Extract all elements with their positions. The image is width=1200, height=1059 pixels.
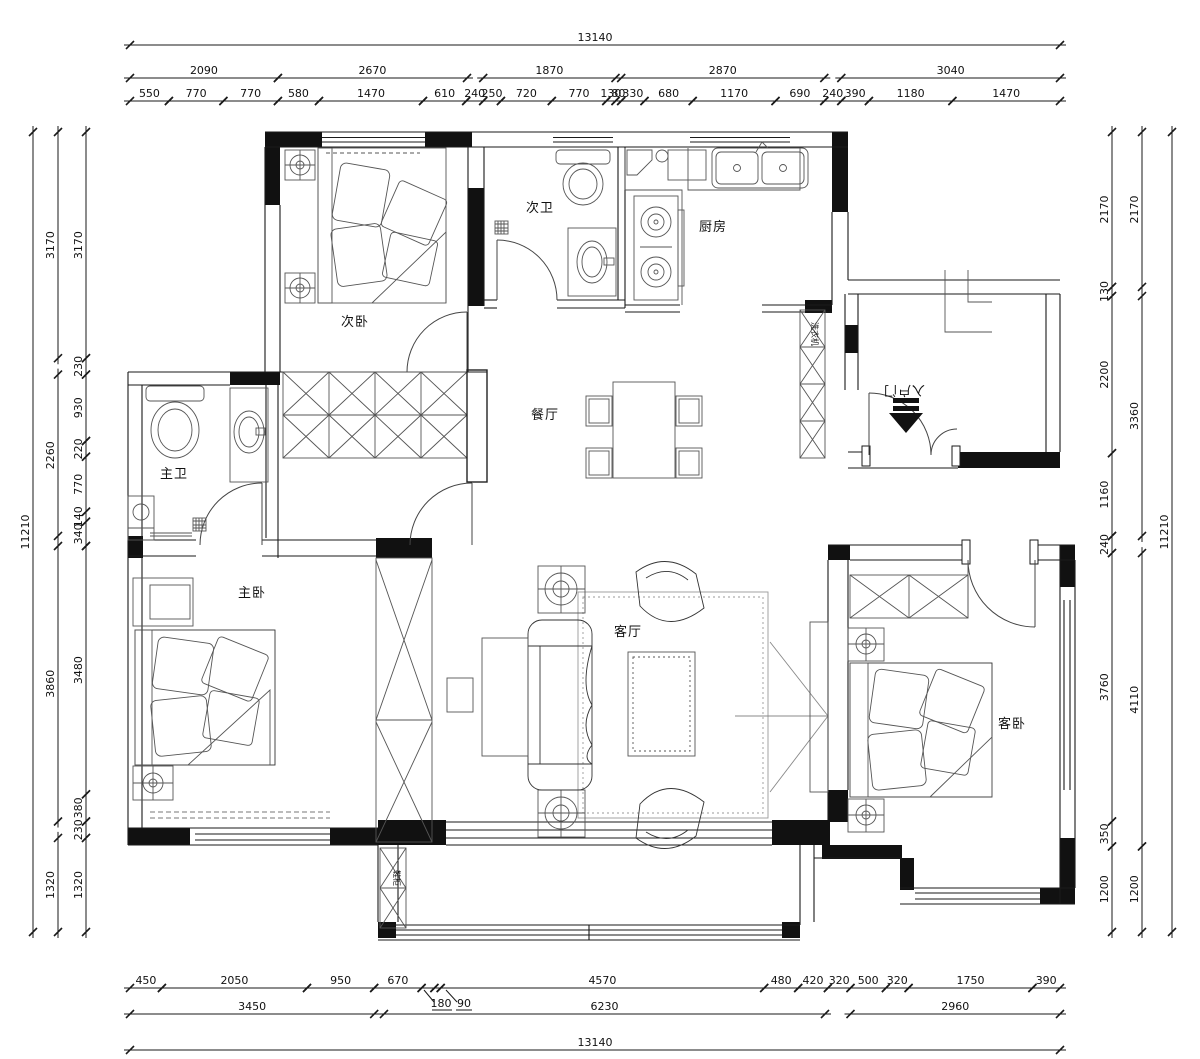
guest-wardrobe	[850, 560, 968, 618]
dim-chain-left-mid: 3170226038601320	[44, 126, 62, 938]
dim-label: 580	[288, 87, 309, 100]
floor-drain1	[193, 518, 206, 531]
curtain1	[150, 812, 330, 818]
dim-label: 610	[434, 87, 455, 100]
dim-label: 1170	[720, 87, 748, 100]
dim-chain-left-inner: 317023093022077014034034803802301320	[72, 126, 90, 938]
dim-label: 250	[482, 87, 503, 100]
dim-label: 550	[139, 87, 160, 100]
dim-label: 2670	[358, 64, 386, 77]
gas-stove	[634, 196, 684, 300]
dim-label: 950	[330, 974, 351, 987]
room-label-living: 客厅	[614, 624, 642, 640]
bedroom2-door	[407, 312, 467, 372]
room-label-kitchen: 厨房	[699, 219, 727, 235]
dim-label: 1200	[1098, 875, 1111, 903]
coffee-table	[628, 652, 695, 756]
dim-leader-label: 180	[431, 997, 452, 1010]
dining-table	[613, 382, 675, 478]
dim-label: 3170	[44, 231, 57, 259]
dim-label: 6230	[591, 1000, 619, 1013]
corner-shelf	[627, 150, 652, 175]
living-furniture	[447, 561, 828, 848]
dim-label: 3760	[1098, 673, 1111, 701]
dim-label: 320	[887, 974, 908, 987]
sofa-console	[482, 638, 528, 756]
dim-label: 1160	[1098, 481, 1111, 509]
dim-label: 11210	[19, 515, 32, 550]
dim-chain-bottom-groups: 345062302960	[124, 1000, 1066, 1018]
dim-chain-bottom-overall: 13140	[124, 1036, 1066, 1054]
floor-drain2	[495, 221, 508, 234]
vanity2	[568, 228, 616, 296]
dim-label: 1750	[957, 974, 985, 987]
dim-label: 390	[1036, 974, 1057, 987]
dim-label: 2960	[941, 1000, 969, 1013]
room-label-bedroom1: 主卧	[238, 586, 266, 601]
dim-label: 670	[387, 974, 408, 987]
dim-label: 320	[829, 974, 850, 987]
dim-label: 350	[1098, 823, 1111, 844]
floor-speaker	[447, 678, 473, 712]
dim-label: 380	[72, 797, 85, 818]
bedroom2-furniture	[285, 148, 448, 303]
dim-label: 770	[186, 87, 207, 100]
dim-label: 1320	[44, 871, 57, 899]
bath2-door	[497, 240, 557, 300]
kitchen-knob	[656, 150, 668, 162]
dim-label: 2170	[1128, 195, 1141, 223]
dim-label: 2170	[1098, 195, 1111, 223]
structural-walls	[128, 132, 1075, 938]
dim-label: 340	[72, 523, 85, 544]
dim-label: 690	[789, 87, 810, 100]
dim-chain-top-detail: 5507707705801470610240250720770130803306…	[124, 87, 1066, 105]
dining-furniture	[586, 382, 702, 478]
room-label-bedroom3: 客卧	[998, 716, 1026, 732]
dim-chain-right-mid: 2170336041101200	[1128, 126, 1146, 938]
dim-label: 770	[569, 87, 590, 100]
dim-label: 3450	[238, 1000, 266, 1013]
dim-label: 930	[72, 397, 85, 418]
vanity1	[230, 388, 268, 482]
dim-leader-label: 90	[457, 997, 471, 1010]
dim-label: 4570	[588, 974, 616, 987]
floor-plan-svg: 1314020902670187028703040550770770580147…	[0, 0, 1200, 1059]
tv-cabinet	[810, 622, 828, 792]
bedroom1-furniture	[133, 578, 330, 818]
wall-lines	[128, 132, 1075, 940]
annotation-washing-machine: 洗衣机	[810, 322, 820, 346]
dim-label: 1180	[897, 87, 925, 100]
dim-chain-right-inner: 21701302200116024037603501200	[1098, 126, 1116, 938]
annotation-shoe-cabinet: 鞋柜	[392, 870, 402, 886]
nightstand1	[133, 766, 173, 800]
dim-label: 3170	[72, 231, 85, 259]
bedroom3-door	[968, 560, 1035, 627]
floor-plan-canvas: 1314020902670187028703040550770770580147…	[0, 0, 1200, 1059]
bath1-fixtures	[128, 386, 268, 540]
dim-label: 450	[135, 974, 156, 987]
dim-label: 2870	[709, 64, 737, 77]
dim-label: 720	[516, 87, 537, 100]
dim-label: 13140	[578, 1036, 613, 1049]
dim-label: 13140	[578, 31, 613, 44]
dim-chain-bottom-detail: 450205095067045704804203205003201750390	[124, 974, 1066, 992]
bedroom3-furniture	[848, 628, 992, 832]
nightstand2a	[285, 150, 315, 180]
dim-label: 2050	[220, 974, 248, 987]
dim-label: 230	[72, 356, 85, 377]
dim-label: 1870	[535, 64, 563, 77]
dim-label: 3860	[44, 670, 57, 698]
dim-label: 420	[803, 974, 824, 987]
dim-label: 230	[72, 819, 85, 840]
armchair-bottom	[636, 788, 704, 848]
dim-label: 500	[858, 974, 879, 987]
annotation-entry-door: 入户门	[883, 382, 925, 398]
dim-label: 240	[822, 87, 843, 100]
dim-label: 680	[658, 87, 679, 100]
dim-label: 240	[1098, 534, 1111, 555]
tv-projection	[735, 642, 828, 792]
ac-platform	[945, 270, 992, 332]
dim-chain-top-overall: 13140	[124, 31, 1066, 49]
bath2-fixtures	[495, 150, 616, 296]
double-sink	[712, 142, 808, 188]
shoe-cabinet	[380, 848, 406, 928]
dim-label: 11210	[1158, 515, 1171, 550]
room-label-bath2: 次卫	[526, 200, 554, 216]
dim-label: 390	[845, 87, 866, 100]
room-label-dining: 餐厅	[531, 407, 559, 423]
rug	[578, 592, 768, 818]
dim-label: 1200	[1128, 875, 1141, 903]
armchair-top	[636, 561, 704, 621]
dim-chain-right-outer: 11210	[1158, 126, 1176, 938]
cutting-board	[668, 150, 706, 180]
toilet1	[146, 386, 204, 458]
dim-chain-top-groups: 20902670187028703040	[124, 64, 1066, 82]
toilet2	[556, 150, 610, 205]
dim-chain-left-outer: 11210	[19, 126, 37, 938]
room-label-bedroom2: 次卧	[341, 314, 369, 330]
towel-rail	[150, 533, 192, 536]
master-wardrobe	[376, 558, 432, 842]
dim-label: 480	[771, 974, 792, 987]
room-label-bath1: 主卫	[160, 467, 188, 482]
dim-label: 1470	[357, 87, 385, 100]
nightstand2b	[285, 273, 315, 303]
hallway-cabinet	[283, 372, 467, 458]
dim-label: 3480	[72, 656, 85, 684]
entry-arrow	[889, 398, 923, 433]
dim-label: 4110	[1128, 686, 1141, 714]
nightstand3b	[848, 799, 884, 832]
dim-label: 2090	[190, 64, 218, 77]
dimension-lines: 1314020902670187028703040550770770580147…	[19, 31, 1176, 1054]
dim-label: 220	[72, 438, 85, 459]
dim-label: 770	[240, 87, 261, 100]
bath1-door	[200, 483, 262, 545]
dim-label: 2260	[44, 441, 57, 469]
master-hall-door	[410, 483, 472, 545]
dim-label: 330	[622, 87, 643, 100]
dim-label: 3360	[1128, 402, 1141, 430]
dim-label: 2200	[1098, 361, 1111, 389]
nightstand3a	[848, 628, 884, 661]
dim-label: 3040	[937, 64, 965, 77]
tall-cabinet	[467, 370, 487, 482]
dim-label: 1320	[72, 871, 85, 899]
dim-label: 770	[72, 474, 85, 495]
dim-label: 1470	[992, 87, 1020, 100]
sofa	[528, 620, 592, 790]
